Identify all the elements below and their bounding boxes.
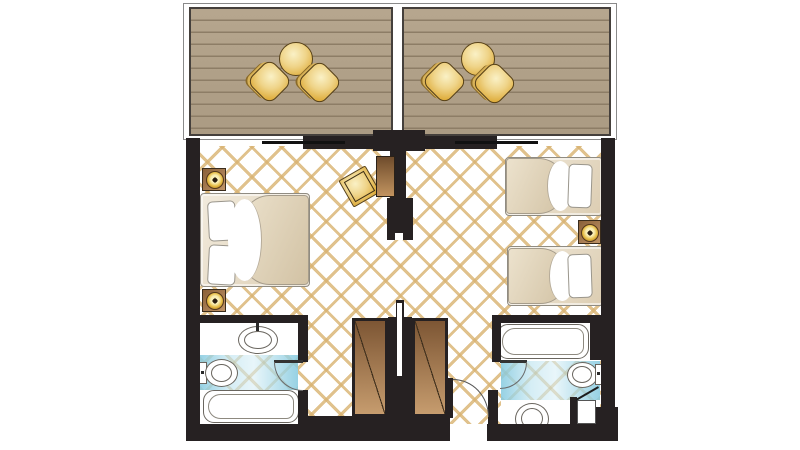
right-shower-stall	[577, 400, 596, 424]
wall-left-exterior	[186, 138, 200, 440]
party-wall-lower-cavity	[397, 303, 402, 376]
lamp-icon	[206, 292, 224, 310]
right-bathroom-left-wall-lower	[488, 390, 498, 424]
left-toilet-button-icon	[201, 371, 204, 374]
lamp-icon	[581, 224, 599, 242]
wall-top-center-pillar	[373, 130, 425, 151]
right-room-nightstand	[578, 220, 601, 244]
wall-bottom-left-section	[186, 424, 450, 441]
left-bathtub-inner	[208, 394, 294, 419]
right-bathroom-divider	[570, 397, 577, 437]
left-room-nightstand-bottom	[202, 289, 226, 312]
left-washbasin-faucet-icon	[256, 322, 259, 331]
left-room-nightstand-top	[202, 168, 226, 191]
double-bed-duvet	[236, 195, 309, 285]
left-bathroom-top-wall	[200, 315, 308, 323]
left-sliding-door-panel	[262, 141, 345, 144]
left-bathroom-right-wall-lower	[298, 390, 308, 424]
left-toilet-seat	[211, 364, 232, 382]
left-washbasin-inner	[244, 331, 272, 349]
bottom-right-corner-block	[596, 407, 618, 441]
single-bed-bottom-pillow	[567, 254, 593, 299]
wall-right-exterior	[601, 138, 615, 440]
wall-bottom-vestibule-bump	[300, 416, 450, 424]
right-toilet-button-icon	[597, 372, 600, 375]
right-toilet-seat	[572, 366, 592, 383]
right-bathtub-inner	[502, 328, 584, 355]
left-bathroom-right-wall-upper	[298, 315, 308, 362]
lamp-icon	[206, 171, 224, 189]
right-sliding-door-panel	[455, 141, 538, 144]
single-bed-bottom-duvet	[508, 248, 568, 304]
right-bathroom-column	[590, 315, 615, 360]
tv-cabinet	[376, 156, 395, 197]
right-bathroom-left-wall-upper	[492, 315, 501, 362]
floor-plan-canvas	[0, 0, 800, 450]
single-bed-top-duvet	[506, 158, 566, 214]
party-wall-upper-cavity	[395, 233, 403, 240]
left-wardrobe	[352, 318, 388, 417]
single-bed-top-pillow	[567, 164, 593, 209]
right-wardrobe	[412, 318, 448, 417]
